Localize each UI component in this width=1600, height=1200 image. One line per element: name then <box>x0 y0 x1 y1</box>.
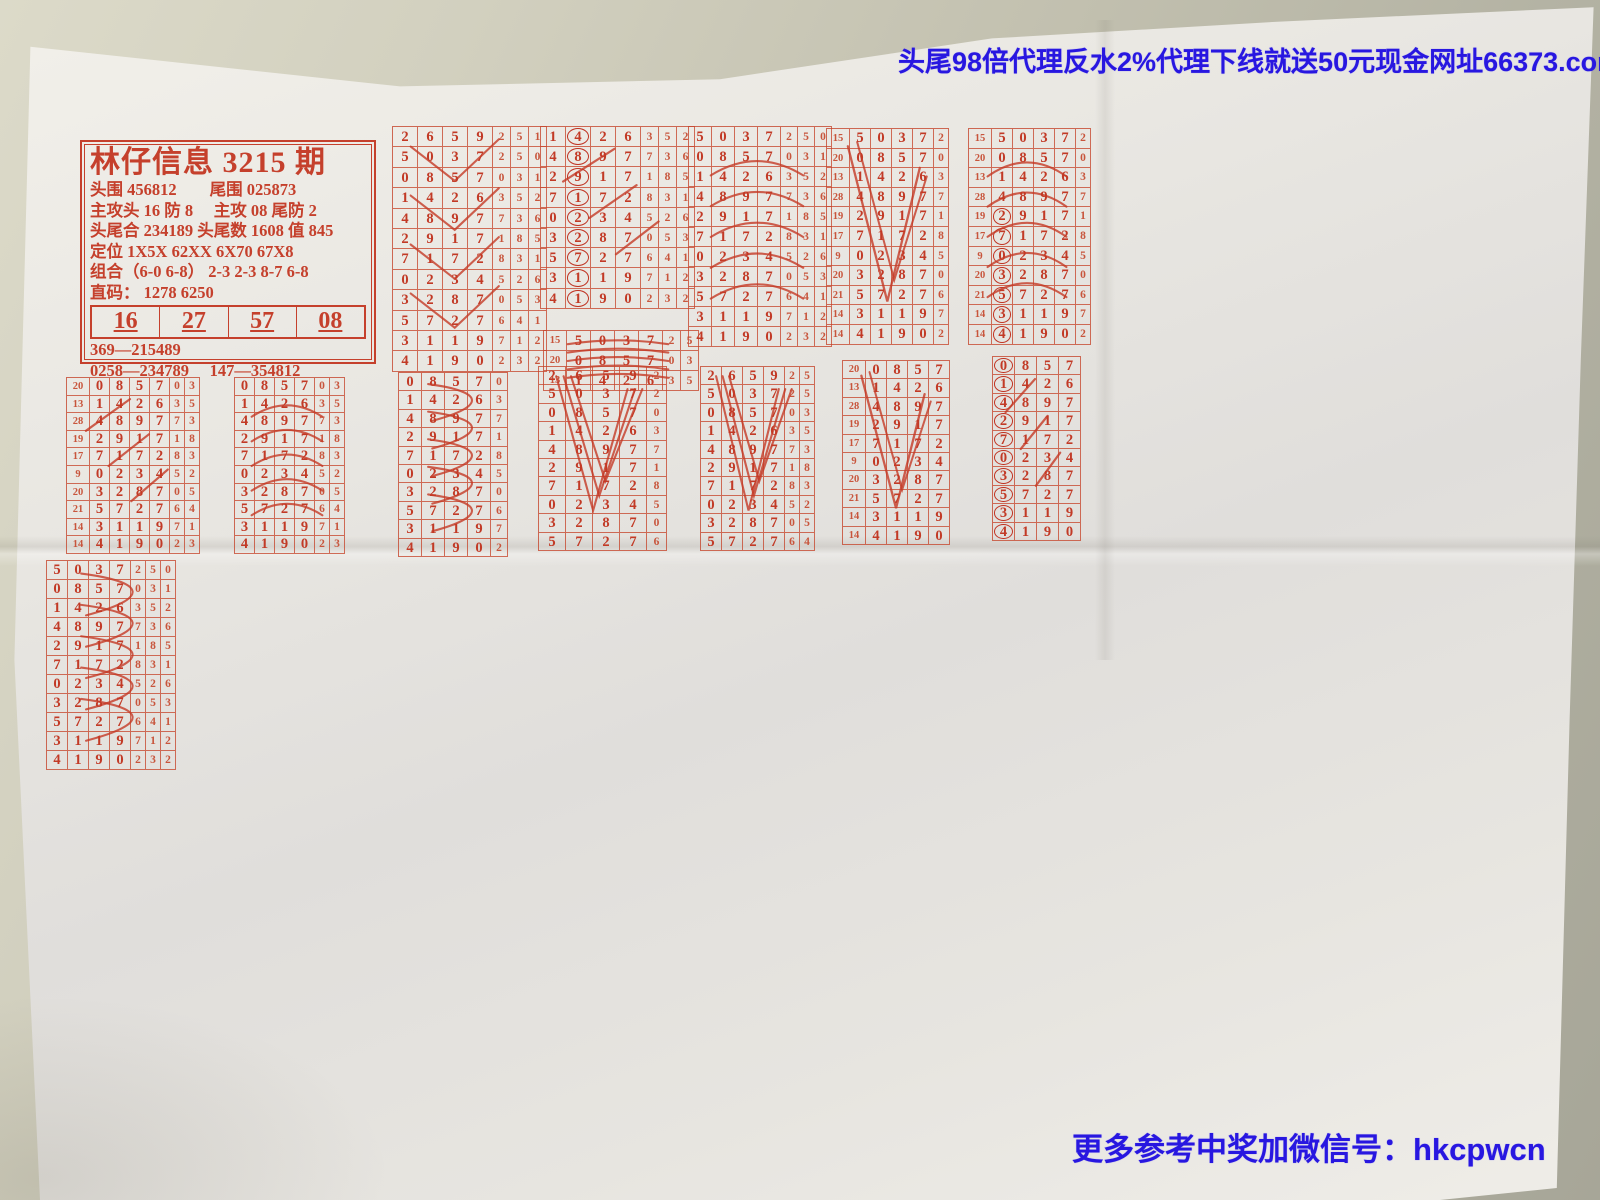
draw-digit: 5 <box>47 561 68 580</box>
miss-count: 13 <box>843 379 866 397</box>
draw-digit: 4 <box>185 501 200 519</box>
miss-count: 28 <box>67 413 90 431</box>
draw-digit: 0 <box>235 466 255 484</box>
draw-digit: 3 <box>185 536 200 554</box>
draw-digit: 5 <box>399 502 422 520</box>
draw-digit: 4 <box>47 618 68 637</box>
draw-digit: 3 <box>993 467 1015 485</box>
draw-digit: 1 <box>689 167 712 187</box>
miss-count: 28 <box>827 188 850 208</box>
draw-digit: 0 <box>1076 266 1091 286</box>
draw-digit: 1 <box>850 168 871 188</box>
info-extra-line: 369—215489 <box>90 340 368 361</box>
draw-digit: 7 <box>110 713 131 732</box>
draw-digit: 5 <box>393 147 418 167</box>
draw-digit: 7 <box>764 533 785 551</box>
miss-count: 20 <box>969 149 992 169</box>
draw-digit: 9 <box>892 188 913 208</box>
draw-digit: 5 <box>511 127 529 147</box>
draw-digit: 3 <box>511 209 529 229</box>
draw-digit: 3 <box>908 453 929 471</box>
trend-grid-block: 2008570313142635284897731929171817717283… <box>66 377 200 554</box>
miss-count: 13 <box>827 168 850 188</box>
draw-digit: 8 <box>68 618 89 637</box>
draw-digit: 7 <box>150 378 170 396</box>
draw-digit: 4 <box>993 394 1015 412</box>
trend-grid-block: 2659251503725008570311426352489773629171… <box>392 126 547 372</box>
draw-digit: 5 <box>647 496 667 514</box>
draw-digit: 2 <box>295 448 315 466</box>
draw-digit: 2 <box>701 459 722 477</box>
draw-digit: 0 <box>647 514 667 532</box>
draw-digit: 9 <box>929 508 950 526</box>
draw-digit: 4 <box>295 466 315 484</box>
draw-digit: 5 <box>892 149 913 169</box>
draw-digit: 8 <box>1013 188 1034 208</box>
trend-grid-block: 1426352489773629171857172831023452632870… <box>540 126 695 309</box>
draw-digit: 3 <box>399 483 422 501</box>
draw-digit: 7 <box>1055 207 1076 227</box>
draw-digit: 0 <box>393 270 418 290</box>
info-line: 头围 456812 尾围 025873 <box>90 180 368 201</box>
draw-digit: 5 <box>798 127 815 147</box>
draw-digit: 2 <box>1059 431 1081 449</box>
draw-digit: 3 <box>330 448 345 466</box>
draw-digit: 2 <box>701 367 722 385</box>
draw-digit: 5 <box>1076 247 1091 267</box>
draw-digit: 1 <box>866 379 887 397</box>
draw-digit: 2 <box>1034 286 1055 306</box>
draw-digit: 7 <box>295 378 315 396</box>
draw-digit: 4 <box>1059 449 1081 467</box>
draw-digit: 6 <box>131 713 146 732</box>
miss-count: 21 <box>827 286 850 306</box>
draw-digit: 5 <box>146 599 161 618</box>
draw-digit: 1 <box>712 307 735 327</box>
draw-digit: 7 <box>170 413 185 431</box>
draw-digit: 1 <box>418 331 443 351</box>
draw-digit: 4 <box>850 188 871 208</box>
info-line: 主攻头 16 防 8 主攻 08 尾防 2 <box>90 201 368 222</box>
draw-digit: 0 <box>871 129 892 149</box>
draw-digit: 7 <box>110 637 131 656</box>
draw-digit: 3 <box>185 378 200 396</box>
draw-digit: 4 <box>1055 247 1076 267</box>
draw-digit: 0 <box>781 267 798 287</box>
draw-digit: 5 <box>443 127 468 147</box>
draw-digit: 1 <box>701 422 722 440</box>
draw-digit: 0 <box>785 404 800 422</box>
draw-digit: 7 <box>1034 227 1055 247</box>
miss-count: 17 <box>827 227 850 247</box>
draw-digit: 8 <box>591 228 616 248</box>
draw-digit: 3 <box>866 508 887 526</box>
draw-digit: 1 <box>255 448 275 466</box>
draw-digit: 0 <box>722 385 743 403</box>
draw-digit: 3 <box>393 331 418 351</box>
miss-count: 13 <box>969 168 992 188</box>
draw-digit: 7 <box>1076 305 1091 325</box>
draw-digit: 2 <box>659 208 677 228</box>
draw-digit: 7 <box>764 404 785 422</box>
draw-digit: 2 <box>110 656 131 675</box>
draw-digit: 0 <box>315 484 330 502</box>
draw-digit: 1 <box>170 431 185 449</box>
issue-info-lines: 头围 456812 尾围 025873主攻头 16 防 8 主攻 08 尾防 2… <box>90 180 368 303</box>
draw-digit: 4 <box>235 413 255 431</box>
draw-digit: 3 <box>90 519 110 537</box>
draw-digit: 1 <box>1037 412 1059 430</box>
draw-digit: 3 <box>659 147 677 167</box>
draw-digit: 5 <box>393 311 418 331</box>
draw-digit: 5 <box>539 385 566 403</box>
draw-digit: 8 <box>593 514 620 532</box>
pick-number: 27 <box>160 307 228 337</box>
draw-digit: 0 <box>493 168 511 188</box>
draw-digit: 2 <box>712 247 735 267</box>
draw-digit: 9 <box>722 459 743 477</box>
draw-digit: 6 <box>110 599 131 618</box>
draw-digit: 0 <box>418 147 443 167</box>
draw-digit: 7 <box>393 249 418 269</box>
draw-digit: 1 <box>908 508 929 526</box>
draw-digit: 7 <box>929 416 950 434</box>
miss-count: 20 <box>843 471 866 489</box>
draw-digit: 7 <box>913 266 934 286</box>
draw-digit: 7 <box>735 227 758 247</box>
draw-digit: 3 <box>800 404 815 422</box>
draw-digit: 2 <box>620 477 647 495</box>
draw-digit: 1 <box>445 428 468 446</box>
draw-digit: 9 <box>110 431 130 449</box>
draw-digit: 2 <box>150 448 170 466</box>
draw-digit: 2 <box>131 751 146 770</box>
draw-digit: 5 <box>511 188 529 208</box>
draw-digit: 1 <box>566 188 591 208</box>
draw-digit: 3 <box>743 385 764 403</box>
draw-digit: 7 <box>764 514 785 532</box>
draw-digit: 3 <box>1076 168 1091 188</box>
draw-digit: 7 <box>913 149 934 169</box>
draw-digit: 7 <box>468 428 491 446</box>
draw-digit: 4 <box>764 496 785 514</box>
draw-digit: 7 <box>764 441 785 459</box>
draw-digit: 0 <box>993 357 1015 375</box>
draw-digit: 9 <box>295 519 315 537</box>
issue-extra-lines: 369—2154890258—234789 147—354812 <box>90 340 368 381</box>
draw-digit: 1 <box>566 477 593 495</box>
draw-digit: 4 <box>399 410 422 428</box>
draw-digit: 3 <box>511 351 529 371</box>
draw-digit: 3 <box>992 305 1013 325</box>
draw-digit: 2 <box>892 168 913 188</box>
draw-digit: 0 <box>913 325 934 345</box>
draw-digit: 3 <box>541 228 566 248</box>
draw-digit: 4 <box>330 501 345 519</box>
wechat-contact-banner: 更多参考中奖加微信号：hkcpwcn <box>1072 1124 1546 1169</box>
draw-digit: 7 <box>468 373 491 391</box>
draw-digit: 8 <box>110 378 130 396</box>
draw-digit: 2 <box>908 379 929 397</box>
draw-digit: 8 <box>887 361 908 379</box>
draw-digit: 6 <box>758 167 781 187</box>
draw-digit: 3 <box>735 247 758 267</box>
draw-digit: 3 <box>615 331 639 351</box>
draw-digit: 8 <box>418 209 443 229</box>
draw-digit: 3 <box>850 266 871 286</box>
draw-digit: 0 <box>701 496 722 514</box>
draw-digit: 0 <box>616 289 641 309</box>
draw-digit: 2 <box>593 422 620 440</box>
draw-digit: 1 <box>1037 504 1059 522</box>
draw-digit: 3 <box>330 378 345 396</box>
draw-digit: 6 <box>170 501 185 519</box>
draw-digit: 2 <box>735 167 758 187</box>
draw-digit: 2 <box>908 490 929 508</box>
miss-count: 21 <box>969 286 992 306</box>
draw-digit: 4 <box>150 466 170 484</box>
draw-digit: 1 <box>892 207 913 227</box>
draw-digit: 3 <box>393 290 418 310</box>
draw-digit: 2 <box>131 561 146 580</box>
draw-digit: 4 <box>393 351 418 371</box>
draw-digit: 2 <box>255 466 275 484</box>
draw-digit: 6 <box>468 188 493 208</box>
draw-digit: 1 <box>887 527 908 545</box>
draw-digit: 1 <box>47 599 68 618</box>
draw-digit: 7 <box>468 209 493 229</box>
draw-digit: 7 <box>591 188 616 208</box>
draw-digit: 9 <box>908 527 929 545</box>
draw-digit: 4 <box>620 496 647 514</box>
draw-digit: 6 <box>641 248 659 268</box>
agent-ad-banner: 头尾98倍代理反水2%代理下线就送50元现金网址66373.com <box>898 40 1600 79</box>
draw-digit: 8 <box>785 477 800 495</box>
draw-digit: 7 <box>639 331 663 351</box>
draw-digit: 7 <box>468 311 493 331</box>
draw-digit: 4 <box>422 391 445 409</box>
draw-digit: 7 <box>468 168 493 188</box>
draw-digit: 3 <box>90 484 110 502</box>
draw-digit: 7 <box>295 501 315 519</box>
draw-digit: 1 <box>871 227 892 247</box>
pick-number: 08 <box>297 307 364 337</box>
draw-digit: 8 <box>871 188 892 208</box>
draw-digit: 5 <box>798 267 815 287</box>
draw-digit: 8 <box>491 447 508 465</box>
draw-digit: 5 <box>800 385 815 403</box>
draw-digit: 2 <box>68 694 89 713</box>
draw-digit: 5 <box>275 378 295 396</box>
draw-digit: 4 <box>393 209 418 229</box>
draw-digit: 7 <box>647 441 667 459</box>
draw-digit: 0 <box>131 580 146 599</box>
draw-digit: 2 <box>800 496 815 514</box>
draw-digit: 2 <box>161 732 176 751</box>
draw-digit: 2 <box>866 416 887 434</box>
draw-digit: 2 <box>850 207 871 227</box>
draw-digit: 5 <box>185 396 200 414</box>
draw-digit: 0 <box>1055 325 1076 345</box>
draw-digit: 7 <box>1059 467 1081 485</box>
draw-digit: 3 <box>235 519 255 537</box>
draw-digit: 4 <box>566 422 593 440</box>
draw-digit: 2 <box>566 496 593 514</box>
draw-digit: 8 <box>315 448 330 466</box>
draw-digit: 2 <box>130 396 150 414</box>
miss-count: 20 <box>827 266 850 286</box>
draw-digit: 0 <box>647 404 667 422</box>
draw-digit: 1 <box>722 477 743 495</box>
draw-digit: 0 <box>591 331 615 351</box>
draw-digit: 9 <box>130 413 150 431</box>
draw-digit: 2 <box>663 331 681 351</box>
draw-digit: 2 <box>641 289 659 309</box>
pick-number: 16 <box>92 307 160 337</box>
draw-digit: 5 <box>89 580 110 599</box>
draw-digit: 8 <box>641 188 659 208</box>
draw-digit: 8 <box>659 167 677 187</box>
draw-digit: 8 <box>1034 266 1055 286</box>
draw-digit: 4 <box>146 713 161 732</box>
draw-digit: 7 <box>758 267 781 287</box>
draw-digit: 2 <box>541 167 566 187</box>
draw-digit: 8 <box>892 266 913 286</box>
draw-digit: 2 <box>443 188 468 208</box>
draw-digit: 7 <box>781 187 798 207</box>
draw-digit: 4 <box>659 248 677 268</box>
draw-digit: 8 <box>443 290 468 310</box>
draw-digit: 7 <box>150 484 170 502</box>
draw-digit: 0 <box>170 484 185 502</box>
draw-digit: 3 <box>539 514 566 532</box>
draw-digit: 7 <box>68 713 89 732</box>
draw-digit: 7 <box>616 248 641 268</box>
draw-digit: 3 <box>866 471 887 489</box>
draw-digit: 7 <box>908 435 929 453</box>
draw-digit: 7 <box>90 448 110 466</box>
draw-digit: 2 <box>315 536 330 554</box>
draw-digit: 7 <box>110 501 130 519</box>
draw-digit: 3 <box>681 351 699 371</box>
draw-digit: 7 <box>620 404 647 422</box>
draw-digit: 7 <box>566 533 593 551</box>
draw-digit: 6 <box>764 422 785 440</box>
draw-digit: 3 <box>47 694 68 713</box>
draw-digit: 2 <box>468 447 491 465</box>
draw-digit: 7 <box>758 207 781 227</box>
draw-digit: 1 <box>887 435 908 453</box>
draw-digit: 8 <box>566 441 593 459</box>
draw-digit: 5 <box>443 168 468 188</box>
draw-digit: 2 <box>90 431 110 449</box>
draw-digit: 7 <box>993 431 1015 449</box>
draw-digit: 5 <box>161 637 176 656</box>
draw-digit: 4 <box>90 413 110 431</box>
draw-digit: 8 <box>712 147 735 167</box>
draw-digit: 7 <box>616 167 641 187</box>
draw-digit: 0 <box>758 327 781 347</box>
draw-digit: 2 <box>1076 129 1091 149</box>
draw-digit: 9 <box>255 431 275 449</box>
draw-digit: 0 <box>235 378 255 396</box>
draw-digit: 9 <box>591 147 616 167</box>
draw-digit: 1 <box>1013 227 1034 247</box>
miss-count: 14 <box>969 325 992 345</box>
draw-digit: 8 <box>493 249 511 269</box>
draw-digit: 3 <box>593 385 620 403</box>
draw-digit: 2 <box>539 367 566 385</box>
draw-digit: 7 <box>929 471 950 489</box>
draw-digit: 5 <box>800 422 815 440</box>
draw-digit: 0 <box>1076 149 1091 169</box>
draw-digit: 3 <box>146 580 161 599</box>
draw-digit: 8 <box>722 404 743 422</box>
sheet-title: 林仔信息 3215 期 <box>90 146 368 180</box>
draw-digit: 3 <box>399 520 422 538</box>
draw-digit: 9 <box>566 167 591 187</box>
draw-digit: 9 <box>712 207 735 227</box>
draw-digit: 1 <box>131 637 146 656</box>
draw-digit: 5 <box>701 533 722 551</box>
draw-digit: 8 <box>89 694 110 713</box>
draw-digit: 6 <box>161 618 176 637</box>
draw-digit: 1 <box>1034 305 1055 325</box>
draw-digit: 7 <box>620 385 647 403</box>
draw-digit: 8 <box>566 404 593 422</box>
draw-digit: 7 <box>1055 188 1076 208</box>
draw-digit: 1 <box>255 519 275 537</box>
draw-digit: 1 <box>591 268 616 288</box>
draw-digit: 1 <box>275 431 295 449</box>
draw-digit: 1 <box>443 331 468 351</box>
draw-digit: 0 <box>992 247 1013 267</box>
info-line: 定位 1X5X 62XX 6X70 67X8 <box>90 242 368 263</box>
draw-digit: 2 <box>275 501 295 519</box>
draw-digit: 6 <box>1076 286 1091 306</box>
draw-digit: 1 <box>161 656 176 675</box>
draw-digit: 0 <box>47 675 68 694</box>
draw-digit: 8 <box>712 187 735 207</box>
miss-count: 9 <box>67 466 90 484</box>
draw-digit: 1 <box>161 713 176 732</box>
draw-digit: 1 <box>255 536 275 554</box>
draw-digit: 8 <box>1013 149 1034 169</box>
draw-digit: 8 <box>735 267 758 287</box>
draw-digit: 3 <box>593 496 620 514</box>
draw-digit: 7 <box>758 127 781 147</box>
draw-digit: 4 <box>712 167 735 187</box>
draw-digit: 7 <box>295 484 315 502</box>
draw-digit: 4 <box>1013 168 1034 188</box>
draw-digit: 1 <box>529 311 547 331</box>
draw-digit: 5 <box>511 147 529 167</box>
draw-digit: 3 <box>330 413 345 431</box>
draw-digit: 4 <box>758 247 781 267</box>
draw-digit: 4 <box>399 539 422 557</box>
draw-digit: 5 <box>701 385 722 403</box>
draw-digit: 7 <box>491 410 508 428</box>
miss-count: 14 <box>843 508 866 526</box>
draw-digit: 7 <box>929 490 950 508</box>
draw-digit: 7 <box>295 413 315 431</box>
draw-digit: 4 <box>68 599 89 618</box>
draw-digit: 1 <box>887 508 908 526</box>
draw-digit: 7 <box>131 732 146 751</box>
draw-digit: 5 <box>689 287 712 307</box>
draw-digit: 9 <box>735 327 758 347</box>
draw-digit: 1 <box>422 520 445 538</box>
